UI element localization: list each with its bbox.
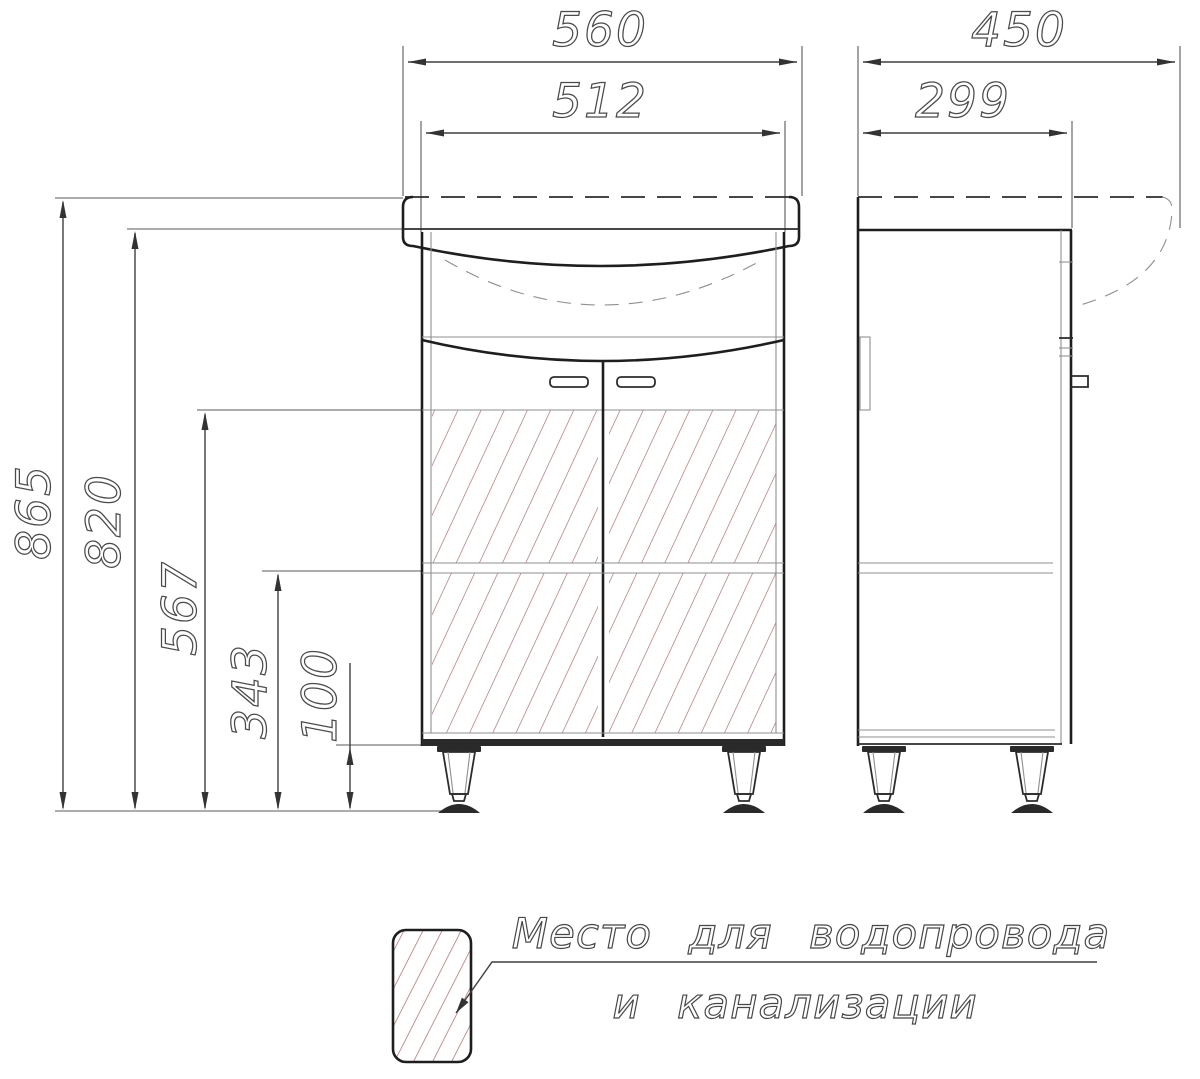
sink-bowl-hidden-line-side <box>1073 197 1172 307</box>
side-view <box>858 197 1172 813</box>
legend-text-line1: Место для водопровода <box>512 909 1110 958</box>
side-top-dimensions: 450 299 <box>858 3 1180 228</box>
sink-outline <box>403 197 799 266</box>
door-handle-left <box>550 377 588 387</box>
front-right-foot <box>722 746 766 813</box>
dim-total-height: 865 <box>7 464 62 560</box>
height-dimensions: 865 820 567 343 100 <box>7 198 457 811</box>
vanity-technical-drawing: 560 512 450 299 865 <box>0 0 1200 1079</box>
washbasin-front <box>403 197 799 305</box>
drawing-sheet: 560 512 450 299 865 <box>0 0 1200 1079</box>
dim-shelf-height: 343 <box>223 643 278 739</box>
dim-cabinet-width: 512 <box>552 74 648 129</box>
dim-sink-width: 560 <box>552 3 648 58</box>
legend: Место для водопровода и канализации <box>393 909 1110 1062</box>
cabinet-bottom-edge <box>422 739 784 746</box>
side-back-foot <box>1010 746 1054 813</box>
dim-cabinet-depth: 299 <box>915 74 1011 129</box>
dim-cabinet-height: 820 <box>77 473 132 569</box>
front-view <box>403 197 799 813</box>
service-zone-hatch-upper-left <box>432 410 598 563</box>
door-top-curve <box>422 340 784 361</box>
legend-hatch-swatch <box>393 930 471 1062</box>
service-zone-hatch-upper-right <box>609 410 776 563</box>
dim-sink-depth: 450 <box>971 3 1067 58</box>
front-left-foot <box>437 746 481 813</box>
service-zone-hatch-lower-right <box>609 573 776 733</box>
door-handle-right <box>617 377 655 387</box>
side-front-foot <box>862 746 906 813</box>
dim-leg-height: 100 <box>293 647 348 743</box>
door-edge-profile <box>860 337 870 410</box>
service-zone-hatch-lower-left <box>432 573 598 733</box>
legend-text-line2: и канализации <box>612 979 977 1028</box>
wall-bracket <box>1071 376 1088 387</box>
dim-service-zone-height: 567 <box>153 560 208 656</box>
